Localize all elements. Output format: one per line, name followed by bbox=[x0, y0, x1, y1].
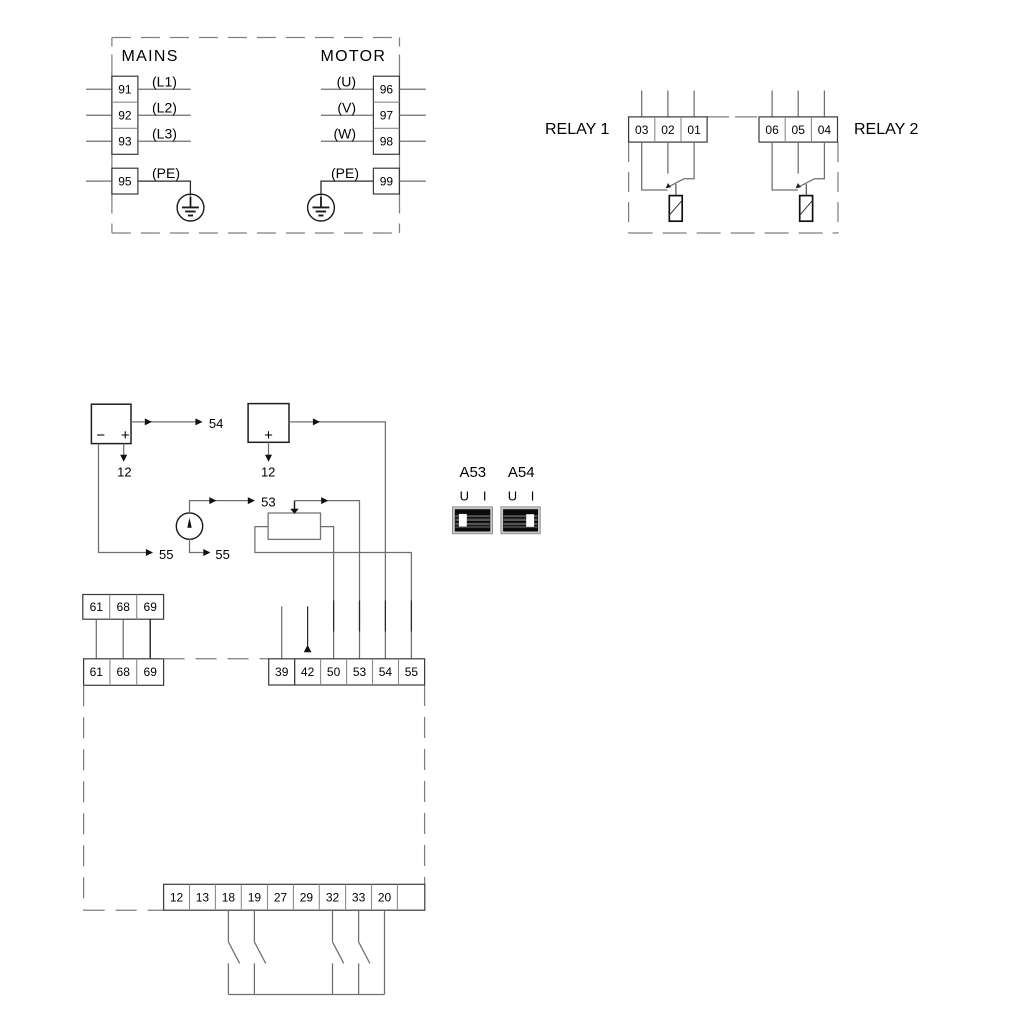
svg-text:20: 20 bbox=[378, 891, 392, 905]
svg-text:95: 95 bbox=[118, 175, 132, 189]
svg-text:53: 53 bbox=[353, 665, 367, 679]
svg-text:18: 18 bbox=[222, 891, 236, 905]
svg-text:29: 29 bbox=[300, 891, 314, 905]
svg-text:12: 12 bbox=[261, 464, 275, 479]
svg-text:19: 19 bbox=[248, 891, 262, 905]
svg-text:99: 99 bbox=[380, 175, 394, 189]
svg-text:12: 12 bbox=[170, 891, 184, 905]
svg-text:39: 39 bbox=[275, 665, 289, 679]
svg-text:54: 54 bbox=[379, 665, 393, 679]
svg-text:69: 69 bbox=[144, 600, 158, 614]
svg-text:54: 54 bbox=[209, 416, 223, 431]
svg-text:MAINS: MAINS bbox=[122, 48, 179, 65]
svg-text:(U): (U) bbox=[337, 73, 356, 89]
svg-text:I: I bbox=[483, 489, 487, 504]
svg-text:68: 68 bbox=[117, 600, 131, 614]
svg-text:+: + bbox=[264, 427, 273, 444]
svg-text:32: 32 bbox=[326, 891, 340, 905]
svg-text:(PE): (PE) bbox=[331, 165, 359, 181]
svg-text:61: 61 bbox=[90, 665, 104, 679]
svg-text:50: 50 bbox=[327, 665, 341, 679]
svg-text:53: 53 bbox=[261, 495, 275, 510]
svg-text:06: 06 bbox=[765, 123, 779, 137]
svg-text:96: 96 bbox=[380, 83, 394, 97]
svg-text:93: 93 bbox=[118, 135, 132, 149]
svg-text:97: 97 bbox=[380, 109, 394, 123]
svg-text:92: 92 bbox=[118, 109, 132, 123]
svg-text:42: 42 bbox=[301, 665, 315, 679]
svg-text:55: 55 bbox=[159, 547, 173, 562]
svg-text:(L3): (L3) bbox=[152, 125, 177, 141]
svg-text:55: 55 bbox=[405, 665, 419, 679]
svg-text:(W): (W) bbox=[333, 125, 356, 141]
svg-text:01: 01 bbox=[687, 123, 701, 137]
svg-text:A53: A53 bbox=[459, 464, 486, 481]
svg-text:(L1): (L1) bbox=[152, 73, 177, 89]
svg-text:55: 55 bbox=[215, 547, 229, 562]
svg-text:RELAY 1: RELAY 1 bbox=[545, 121, 609, 138]
svg-text:U: U bbox=[508, 489, 517, 504]
svg-text:68: 68 bbox=[117, 665, 131, 679]
svg-text:MOTOR: MOTOR bbox=[321, 48, 387, 65]
svg-text:+: + bbox=[121, 427, 130, 444]
svg-text:−: − bbox=[96, 427, 105, 444]
svg-text:91: 91 bbox=[118, 83, 132, 97]
svg-text:13: 13 bbox=[196, 891, 210, 905]
svg-text:61: 61 bbox=[90, 600, 104, 614]
svg-text:(V): (V) bbox=[337, 99, 356, 115]
svg-text:RELAY 2: RELAY 2 bbox=[854, 121, 918, 138]
svg-text:(L2): (L2) bbox=[152, 99, 177, 115]
svg-text:12: 12 bbox=[117, 464, 131, 479]
svg-text:A54: A54 bbox=[508, 464, 535, 481]
svg-text:U: U bbox=[460, 489, 469, 504]
svg-text:04: 04 bbox=[818, 123, 832, 137]
svg-text:05: 05 bbox=[792, 123, 806, 137]
svg-text:33: 33 bbox=[352, 891, 366, 905]
svg-text:98: 98 bbox=[380, 135, 394, 149]
svg-text:69: 69 bbox=[144, 665, 158, 679]
svg-text:27: 27 bbox=[274, 891, 288, 905]
svg-text:I: I bbox=[531, 489, 535, 504]
svg-text:(PE): (PE) bbox=[152, 165, 180, 181]
svg-text:03: 03 bbox=[635, 123, 649, 137]
svg-text:02: 02 bbox=[661, 123, 675, 137]
